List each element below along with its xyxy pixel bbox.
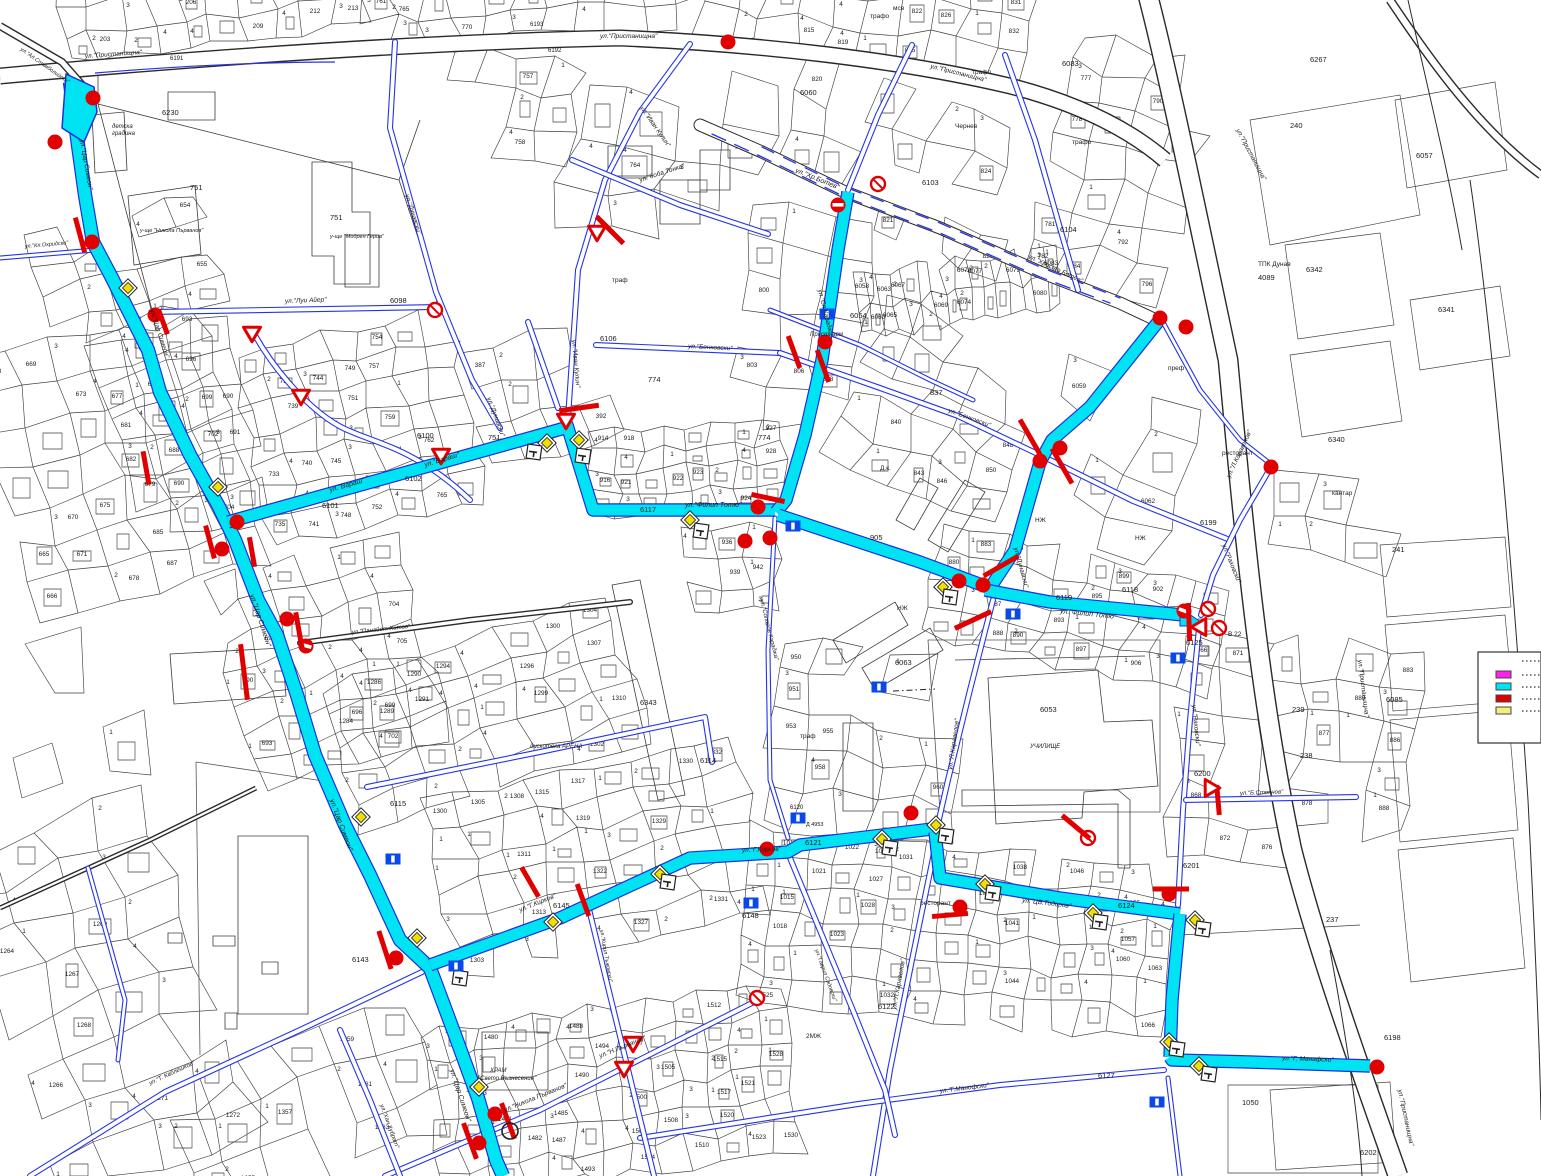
svg-text:4: 4 [629,89,633,96]
svg-text:741: 741 [309,521,320,528]
svg-text:1: 1 [584,828,588,835]
svg-text:6098: 6098 [390,296,407,305]
svg-text:В 22: В 22 [1228,631,1242,638]
svg-text:846: 846 [937,478,948,485]
svg-text:1268: 1268 [77,1022,92,1029]
svg-text:774: 774 [758,433,771,442]
svg-text:751: 751 [190,183,203,192]
svg-text:6080: 6080 [1033,290,1048,297]
svg-text:2: 2 [734,1048,738,1055]
svg-text:392: 392 [596,413,607,420]
svg-text:1: 1 [22,928,26,935]
svg-text:дискотека АРЕНА: дискотека АРЕНА [530,744,582,750]
svg-text:6342: 6342 [1306,265,1323,274]
svg-text:735: 735 [275,521,286,528]
svg-text:6117: 6117 [640,505,656,514]
svg-text:3: 3 [426,1043,430,1050]
svg-text:696: 696 [352,709,363,716]
svg-text:4: 4 [748,941,752,948]
svg-text:883: 883 [1403,667,1414,674]
svg-text:751: 751 [488,433,501,442]
svg-text:3: 3 [179,0,183,3]
svg-text:699: 699 [202,394,213,401]
svg-text:2: 2 [504,793,508,800]
svg-text:685: 685 [153,529,164,536]
svg-text:6065: 6065 [883,312,898,319]
svg-text:1028: 1028 [861,902,876,909]
svg-text:1060: 1060 [1116,956,1131,963]
svg-text:871: 871 [1233,650,1244,657]
svg-text:3: 3 [785,670,789,677]
svg-text:2: 2 [664,916,668,923]
svg-text:678: 678 [129,575,140,582]
svg-text:4: 4 [869,274,873,281]
svg-text:6121: 6121 [805,838,822,847]
svg-text:ул."Луи Айер": ул."Луи Айер" [284,296,328,306]
svg-text:1267: 1267 [65,971,80,978]
svg-text:3: 3 [590,1006,594,1013]
svg-text:878: 878 [1302,800,1313,807]
svg-text:655: 655 [197,261,208,268]
svg-text:2: 2 [1120,928,1124,935]
svg-text:914: 914 [598,435,609,442]
svg-text:4: 4 [540,813,544,820]
svg-text:1313: 1313 [532,909,547,916]
svg-text:740: 740 [302,460,313,467]
svg-text:1480: 1480 [484,1034,499,1041]
svg-text:1: 1 [876,448,880,455]
svg-text:2: 2 [879,735,883,742]
svg-text:НЖ: НЖ [897,605,908,612]
svg-text:1: 1 [135,382,139,389]
svg-text:6059: 6059 [1072,383,1087,390]
svg-text:6267: 6267 [1310,55,1327,64]
svg-text:1357: 1357 [278,1109,293,1116]
svg-text:3: 3 [216,429,220,436]
svg-text:893: 893 [1054,617,1065,624]
svg-text:градина: градина [112,131,136,137]
svg-text:4: 4 [133,943,137,950]
svg-text:897: 897 [1076,646,1087,653]
svg-text:800: 800 [759,287,770,294]
svg-text:733: 733 [269,471,280,478]
svg-text:955: 955 [823,728,834,735]
svg-text:1: 1 [309,690,313,697]
svg-text:3: 3 [88,1102,92,1109]
svg-text:6104: 6104 [1060,225,1077,234]
svg-text:6127: 6127 [1098,1071,1115,1080]
svg-text:1: 1 [1153,923,1157,930]
svg-text:3: 3 [126,2,130,9]
svg-text:832: 832 [1009,28,1020,35]
svg-text:4: 4 [483,730,487,737]
svg-text:1: 1 [751,886,755,893]
svg-text:4: 4 [509,129,513,136]
svg-text:1290: 1290 [407,671,422,678]
svg-text:3: 3 [262,668,266,675]
svg-text:4: 4 [31,1080,35,1087]
svg-text:преф: преф [1168,365,1185,372]
svg-text:2: 2 [128,899,132,906]
svg-text:3: 3 [838,791,842,798]
svg-text:950: 950 [791,654,802,661]
svg-text:1: 1 [670,451,674,458]
svg-text:6103: 6103 [922,178,939,187]
svg-text:759: 759 [385,414,396,421]
svg-text:803: 803 [747,362,758,369]
svg-text:2: 2 [1091,585,1095,592]
svg-text:3: 3 [859,277,863,284]
svg-text:1: 1 [1032,914,1036,921]
svg-text:806: 806 [794,368,805,375]
svg-text:6085: 6085 [1386,695,1403,704]
svg-text:1: 1 [372,661,376,668]
svg-text:4: 4 [683,533,687,540]
svg-text:НЖ: НЖ [1135,535,1146,542]
svg-text:754: 754 [372,334,383,341]
svg-text:702: 702 [388,733,399,740]
svg-text:1: 1 [971,537,975,544]
svg-text:6063: 6063 [895,658,912,667]
svg-text:826: 826 [941,12,952,19]
svg-text:387: 387 [475,362,486,369]
svg-text:4: 4 [581,1128,585,1135]
svg-text:6340: 6340 [1328,435,1345,444]
svg-text:1018: 1018 [773,923,788,930]
svg-text:4: 4 [840,30,844,37]
svg-text:3: 3 [1153,580,1157,587]
svg-text:213: 213 [348,5,359,12]
svg-text:6060: 6060 [800,88,817,97]
svg-text:4: 4 [122,333,126,340]
svg-text:2: 2 [955,106,959,113]
svg-text:2: 2 [520,94,524,101]
svg-text:4: 4 [139,410,143,417]
svg-text:3: 3 [595,471,599,478]
svg-text:3: 3 [1090,945,1094,952]
svg-text:Чернев: Чернев [955,123,978,130]
svg-text:2: 2 [134,37,138,44]
svg-text:2: 2 [508,381,512,388]
svg-text:748: 748 [341,512,352,519]
svg-text:1: 1 [1143,978,1147,985]
svg-text:4: 4 [795,136,799,143]
svg-text:6193: 6193 [530,22,544,28]
svg-text:1315: 1315 [535,789,550,796]
svg-text:3: 3 [1118,568,1122,575]
svg-text:3: 3 [446,916,450,923]
svg-text:1: 1 [1278,521,1282,528]
svg-text:4: 4 [1142,624,1146,631]
svg-text:765: 765 [437,492,448,499]
svg-text:821: 821 [883,217,894,224]
svg-text:3: 3 [403,20,407,27]
svg-text:1: 1 [882,981,886,988]
svg-text:6106: 6106 [600,334,617,343]
svg-text:1319: 1319 [576,815,591,822]
svg-text:2: 2 [660,845,664,852]
svg-text:2: 2 [345,777,349,784]
svg-text:905: 905 [870,533,883,542]
svg-text:843: 843 [914,470,925,477]
svg-text:6199: 6199 [1200,518,1217,527]
svg-text:921: 921 [621,479,632,486]
svg-text:1521: 1521 [741,1080,756,1087]
svg-text:2: 2 [1014,628,1018,635]
svg-text:траф: траф [612,277,628,284]
svg-text:815: 815 [804,27,815,34]
svg-text:3: 3 [689,1086,693,1093]
svg-text:2: 2 [280,698,284,705]
svg-text:1330: 1330 [679,758,694,765]
svg-text:6119: 6119 [1056,593,1072,602]
svg-text:673: 673 [76,391,87,398]
svg-text:4: 4 [625,1125,629,1132]
svg-text:1307: 1307 [587,640,602,647]
svg-text:1: 1 [1310,710,1314,717]
svg-text:6230: 6230 [162,108,179,117]
svg-text:детска: детска [112,124,133,130]
svg-text:1: 1 [711,1087,715,1094]
svg-text:у-ще "Модрен Геров": у-ще "Модрен Геров" [329,234,385,240]
svg-text:958: 958 [815,764,826,771]
svg-text:2МЖ: 2МЖ [806,1033,821,1040]
svg-text:4089: 4089 [1258,273,1275,282]
svg-text:Прист. арм: Прист. арм [810,332,843,338]
svg-text:1023: 1023 [830,931,845,938]
svg-text:ул."Филип Тотю": ул."Филип Тотю" [684,502,742,509]
svg-text:1063: 1063 [1148,965,1163,972]
svg-text:6101: 6101 [322,501,339,510]
svg-text:4: 4 [800,15,804,22]
svg-text:6200: 6200 [1194,769,1211,778]
svg-text:1291: 1291 [415,696,430,703]
svg-text:693: 693 [182,316,193,323]
svg-text:691: 691 [230,429,241,436]
svg-text:770: 770 [462,24,473,31]
svg-text:906: 906 [1131,660,1142,667]
svg-text:1: 1 [924,741,928,748]
svg-text:2: 2 [960,290,964,297]
svg-text:2: 2 [715,467,719,474]
svg-text:918: 918 [624,435,635,442]
svg-text:1300: 1300 [433,808,448,815]
svg-text:880: 880 [949,559,960,566]
svg-text:2: 2 [766,424,770,431]
svg-text:мсв: мсв [893,5,905,12]
svg-text:1041: 1041 [1005,920,1020,927]
svg-text:883: 883 [981,541,992,548]
svg-text:4: 4 [589,143,593,150]
svg-text:1027: 1027 [869,876,884,883]
svg-text:850: 850 [986,467,997,474]
svg-text:758: 758 [515,139,526,146]
svg-text:1: 1 [777,862,781,869]
svg-text:2: 2 [1309,521,1313,528]
svg-text:1305: 1305 [471,799,486,806]
svg-text:1482: 1482 [528,1135,543,1142]
svg-text:1317: 1317 [571,778,586,785]
svg-text:936: 936 [722,539,733,546]
svg-text:6054: 6054 [850,311,867,320]
svg-text:1329: 1329 [652,818,667,825]
svg-text:3: 3 [335,511,339,518]
svg-text:239: 239 [1292,705,1305,714]
svg-text:1331: 1331 [714,896,729,903]
svg-text:757: 757 [523,73,534,80]
svg-text:4: 4 [742,447,746,454]
svg-text:4: 4 [181,403,185,410]
svg-text:876: 876 [1262,844,1273,851]
svg-text:1021: 1021 [812,868,827,875]
svg-text:1: 1 [750,559,754,566]
svg-text:1294: 1294 [436,663,451,670]
svg-text:1: 1 [439,836,443,843]
svg-text:1299: 1299 [534,690,549,697]
svg-text:6341: 6341 [1438,305,1455,314]
svg-text:1031: 1031 [899,854,914,861]
svg-text:1: 1 [599,696,603,703]
svg-text:4: 4 [1117,229,1121,236]
svg-text:819: 819 [838,39,849,46]
svg-text:6058: 6058 [855,283,870,290]
svg-text:1: 1 [265,1103,269,1110]
svg-text:6057: 6057 [1416,151,1433,160]
svg-text:902: 902 [1153,586,1164,593]
svg-text:4: 4 [439,690,443,697]
svg-text:4: 4 [340,673,344,680]
svg-text:3: 3 [1078,63,1082,70]
svg-text:трафо: трафо [1072,139,1092,146]
svg-text:916: 916 [600,477,611,484]
svg-text:4: 4 [474,683,478,690]
svg-text:3: 3 [162,977,166,984]
svg-text:6192: 6192 [548,48,562,54]
svg-text:751: 751 [330,213,343,222]
svg-text:924: 924 [741,495,752,502]
svg-text:2: 2 [174,1123,178,1130]
svg-text:3: 3 [945,276,949,283]
svg-text:3: 3 [718,489,722,496]
svg-text:3: 3 [685,1113,689,1120]
svg-text:820: 820 [812,76,823,83]
svg-text:774: 774 [648,375,661,384]
svg-text:1: 1 [56,1171,60,1176]
svg-text:1: 1 [1095,457,1099,464]
svg-text:6191: 6191 [170,56,184,62]
svg-text:1264: 1264 [0,948,15,955]
svg-text:2: 2 [458,746,462,753]
svg-text:677: 677 [112,393,123,400]
svg-text:682: 682 [126,456,137,463]
svg-text:6148: 6148 [742,911,759,920]
svg-text:УЧИЛИЩЕ: УЧИЛИЩЕ [1029,744,1061,750]
svg-text:3: 3 [348,444,352,451]
svg-text:1300: 1300 [546,623,561,630]
svg-text:3: 3 [740,354,744,361]
svg-text:2: 2 [150,444,154,451]
svg-text:751: 751 [348,395,359,402]
svg-text:2: 2 [890,927,894,934]
svg-text:3: 3 [303,371,307,378]
svg-text:2: 2 [337,1066,341,1073]
svg-text:4: 4 [594,437,598,444]
svg-text:4: 4 [395,491,399,498]
svg-text:752: 752 [372,504,383,511]
svg-text:4: 4 [811,757,815,764]
svg-text:951: 951 [789,686,800,693]
svg-text:3: 3 [1131,869,1135,876]
svg-text:749: 749 [345,365,356,372]
svg-text:4: 4 [359,680,363,687]
svg-text:1289: 1289 [380,708,395,715]
svg-text:3: 3 [980,115,984,122]
svg-text:1520: 1520 [720,1112,735,1119]
svg-text:1: 1 [792,208,796,215]
svg-text:212: 212 [310,8,321,15]
svg-text:1: 1 [710,808,714,815]
svg-text:1: 1 [434,1066,438,1073]
svg-text:2: 2 [392,4,396,11]
svg-text:1490: 1490 [575,1072,590,1079]
svg-text:3: 3 [367,0,371,4]
svg-text:3: 3 [769,980,773,987]
svg-text:3: 3 [1073,357,1077,364]
svg-text:4: 4 [460,650,464,657]
svg-text:2: 2 [929,311,933,318]
svg-text:241: 241 [1392,545,1405,554]
svg-text:2: 2 [969,265,973,272]
svg-text:4: 4 [566,1024,570,1031]
svg-text:3: 3 [230,494,234,501]
svg-text:трафо: трафо [870,13,890,20]
svg-text:1: 1 [506,852,510,859]
svg-text:4: 4 [188,291,192,298]
svg-text:1057: 1057 [1121,936,1136,943]
svg-text:6202: 6202 [1360,1148,1377,1157]
svg-text:1: 1 [1346,712,1350,719]
svg-text:4: 4 [190,28,194,35]
svg-text:757: 757 [369,363,380,370]
svg-text:837: 837 [930,388,943,397]
svg-text:2: 2 [513,874,517,881]
svg-text:6063: 6063 [877,286,892,293]
svg-text:1066: 1066 [1141,1022,1156,1029]
svg-text:872: 872 [1220,835,1231,842]
svg-text:ул."Пристанищна": ул."Пристанищна" [599,33,658,40]
svg-text:3: 3 [1377,767,1381,774]
svg-text:745: 745 [331,458,342,465]
svg-text:4: 4 [952,854,956,861]
svg-text:796: 796 [1142,281,1153,288]
svg-text:траф: траф [800,733,816,740]
svg-text:4: 4 [163,29,167,36]
svg-text:3: 3 [938,459,942,466]
svg-text:761: 761 [376,0,387,5]
svg-text:1: 1 [975,10,979,17]
svg-text:1487: 1487 [552,1137,567,1144]
svg-text:877: 877 [1319,730,1330,737]
svg-text:3: 3 [550,1113,554,1120]
svg-text:1286: 1286 [367,679,382,686]
svg-text:2: 2 [175,500,179,507]
svg-text:1038: 1038 [1013,864,1028,871]
svg-text:696: 696 [186,356,197,363]
svg-text:"Свето Възнесение": "Свето Възнесение" [478,1076,537,1082]
svg-text:4: 4 [748,1131,752,1138]
svg-text:1488: 1488 [569,1023,584,1030]
svg-text:1510: 1510 [695,1142,710,1149]
